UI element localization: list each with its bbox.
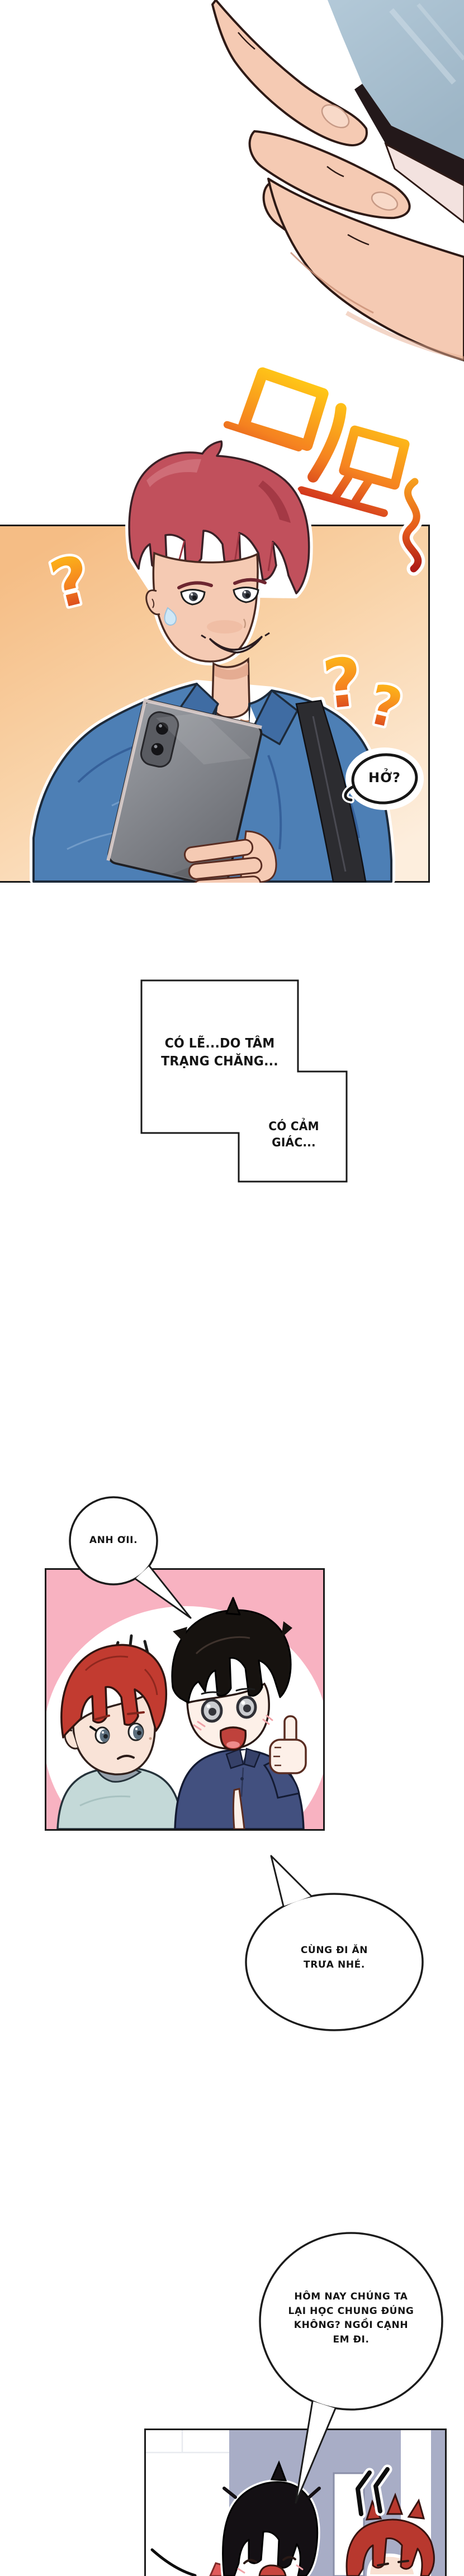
speech-text-lunch: CÙNG ĐI ĂN TRƯA NHÉ. [256, 1944, 413, 1972]
panel-hallway [144, 2429, 447, 2576]
phone-illustration [328, 0, 464, 222]
panel-phone-hand [0, 0, 464, 363]
speech-text-call: ANH ƠII. [66, 1534, 161, 1548]
narration-line: CÓ LẼ...DO TÂM [147, 1035, 292, 1053]
narration-box-a: CÓ LẼ...DO TÂM TRẠNG CHĂNG... [147, 1035, 292, 1070]
speech-bubble-lunch [246, 1856, 423, 2030]
hand-illustration [212, 0, 464, 360]
comic-page: ? ? ? [0, 0, 464, 2576]
sfx-korean-mimyo [215, 364, 418, 523]
panel-chibi-art [46, 1570, 323, 1829]
narration-line: TRẠNG CHĂNG... [147, 1053, 292, 1070]
foreground-arc [152, 2550, 195, 2575]
speech-line: TRƯA NHÉ. [256, 1958, 413, 1973]
speech-line: HÔM NAY CHÚNG TA [267, 2290, 435, 2304]
sfx-korean-label: 미묘 [0, 0, 1, 1]
speech-line: KHÔNG? NGỒI CẠNH [267, 2318, 435, 2333]
panel-hallway-art [146, 2430, 445, 2576]
narration-box-b: CÓ CẢM GIÁC... [247, 1118, 341, 1151]
narration-line: CÓ CẢM GIÁC... [247, 1118, 341, 1151]
speech-line: LẠI HỌC CHUNG ĐÚNG [267, 2304, 435, 2319]
speech-line: EM ĐI. [267, 2333, 435, 2348]
narration-boxes [112, 950, 375, 1212]
speech-text-study: HÔM NAY CHÚNG TA LẠI HỌC CHUNG ĐÚNG KHÔN… [267, 2290, 435, 2347]
panel-man-background [0, 525, 430, 883]
panel-chibi [45, 1568, 325, 1831]
speech-line: CÙNG ĐI ĂN [256, 1944, 413, 1958]
